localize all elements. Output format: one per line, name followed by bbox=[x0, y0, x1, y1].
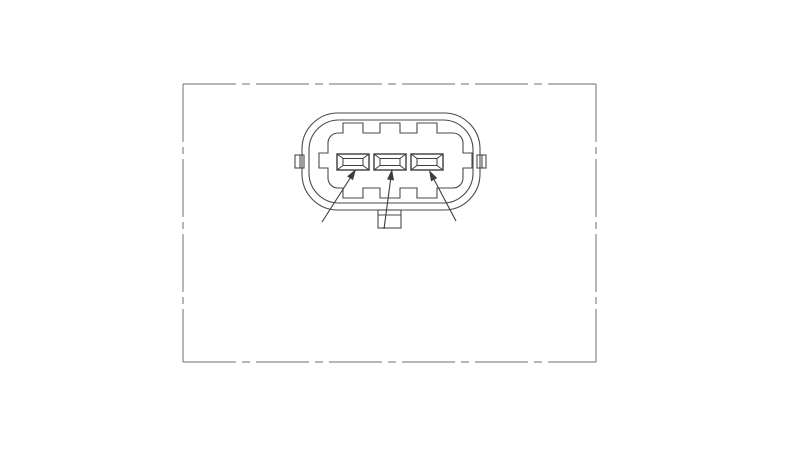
pin-terminal-3 bbox=[411, 154, 443, 170]
bottom-key-tab bbox=[378, 210, 401, 228]
arrowhead bbox=[429, 170, 437, 181]
pin-leader-arrow-3 bbox=[429, 170, 456, 221]
pin-leader-arrow-2 bbox=[384, 169, 394, 229]
drawing-frame bbox=[183, 84, 596, 362]
pin-inner-rect bbox=[343, 159, 363, 166]
arrowhead bbox=[387, 169, 394, 180]
pin-outer-rect bbox=[337, 154, 369, 170]
leader-line bbox=[384, 180, 391, 229]
pin-inner-rect bbox=[380, 159, 400, 166]
pin-leader-arrow-1 bbox=[322, 169, 356, 222]
connector-cavity-outline bbox=[319, 123, 472, 198]
outer-shell bbox=[302, 113, 480, 210]
connector-drawing bbox=[0, 0, 800, 451]
pin-outer-rect bbox=[374, 154, 406, 170]
pin-terminals bbox=[337, 154, 443, 170]
pin-terminal-2 bbox=[374, 154, 406, 170]
leader-line bbox=[434, 180, 456, 221]
pin-terminal-1 bbox=[337, 154, 369, 170]
technical-drawing-canvas bbox=[0, 0, 800, 451]
cavity-castellated-outline bbox=[319, 123, 472, 198]
pin-leader-arrows bbox=[322, 169, 456, 229]
connector-shell-outline bbox=[302, 113, 480, 210]
pin-outer-rect bbox=[411, 154, 443, 170]
pin-inner-rect bbox=[417, 159, 437, 166]
